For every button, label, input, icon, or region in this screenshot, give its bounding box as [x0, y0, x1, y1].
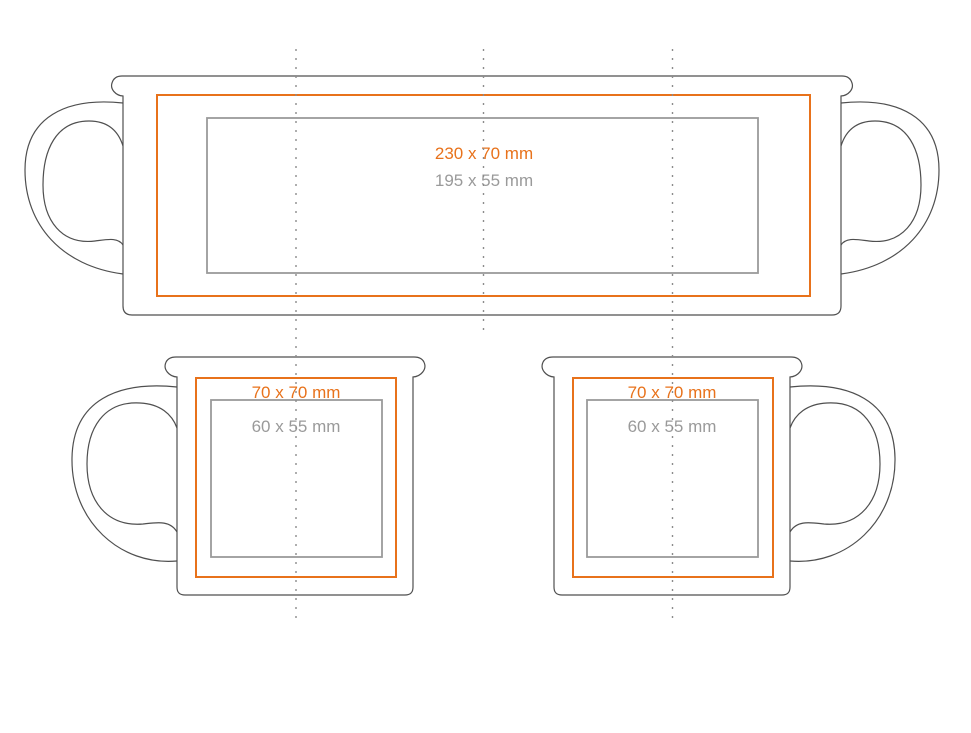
handle-inner-outline [790, 403, 880, 532]
side-view-right: 70 x 70 mm 60 x 55 mm [542, 357, 895, 595]
left-handle-outer-outline [25, 102, 123, 274]
wrap-view: 230 x 70 mm 195 x 55 mm [25, 76, 939, 315]
left-handle-inner-outline [43, 121, 123, 245]
mug-body-outline [112, 76, 853, 315]
handle-inner-outline [87, 403, 177, 532]
safe-area-label: 195 x 55 mm [435, 171, 533, 190]
print-area-label: 230 x 70 mm [435, 144, 533, 163]
diagram-svg: 230 x 70 mm 195 x 55 mm 70 x 70 mm 60 x … [0, 0, 971, 733]
right-handle-outer-outline [841, 102, 939, 274]
right-handle-inner-outline [841, 121, 921, 245]
side-view-left: 70 x 70 mm 60 x 55 mm [72, 357, 425, 595]
mug-print-template-diagram: 230 x 70 mm 195 x 55 mm 70 x 70 mm 60 x … [0, 0, 971, 733]
